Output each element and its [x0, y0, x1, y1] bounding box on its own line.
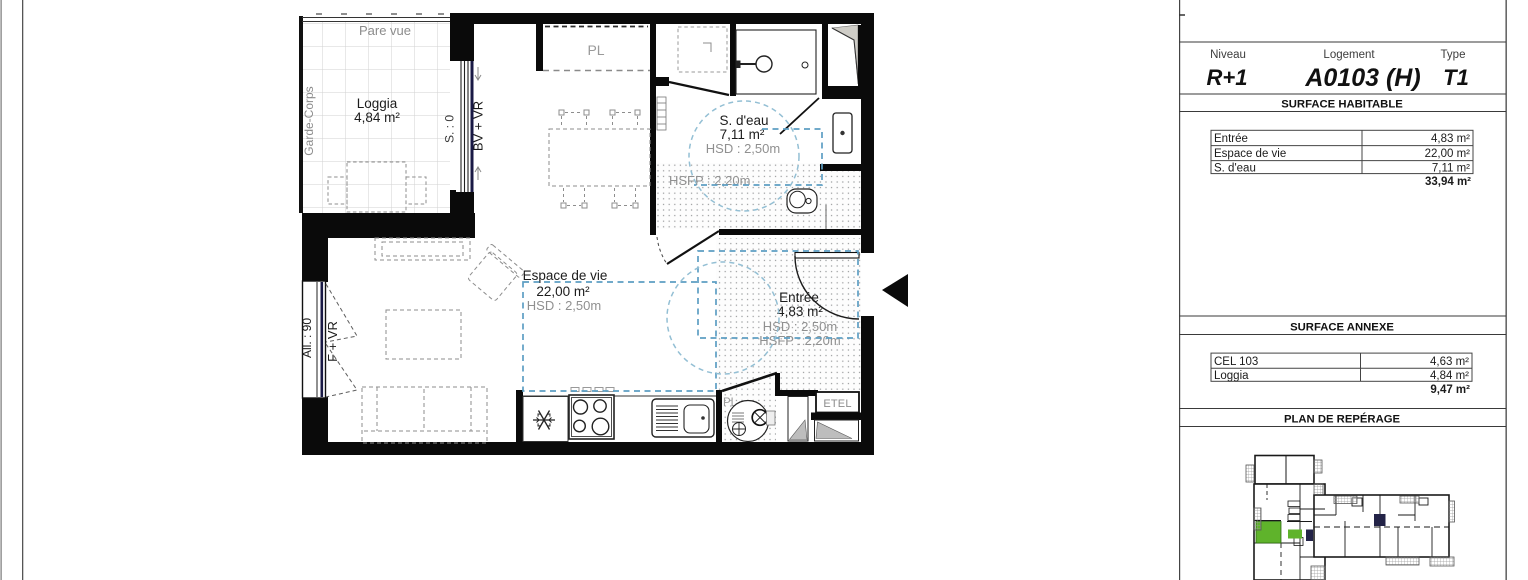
svg-text:BV + VR: BV + VR: [471, 101, 486, 151]
svg-text:HSD : 2,50m: HSD : 2,50m: [763, 319, 837, 334]
svg-text:HSD : 2,50m: HSD : 2,50m: [527, 298, 601, 313]
svg-text:4,83 m²: 4,83 m²: [777, 304, 823, 319]
svg-text:S. d'eau: S. d'eau: [1214, 162, 1256, 174]
svg-text:HSD : 2,50m: HSD : 2,50m: [706, 141, 780, 156]
svg-text:SURFACE HABITABLE: SURFACE HABITABLE: [1281, 99, 1403, 111]
svg-text:S. d'eau: S. d'eau: [719, 113, 768, 128]
svg-text:7,11 m²: 7,11 m²: [720, 127, 765, 142]
svg-text:Entrée: Entrée: [1214, 133, 1248, 145]
svg-text:Niveau: Niveau: [1210, 49, 1246, 61]
svg-text:SURFACE ANNEXE: SURFACE ANNEXE: [1290, 322, 1394, 334]
svg-text:ETEL: ETEL: [823, 398, 851, 410]
svg-text:Garde-Corps: Garde-Corps: [302, 86, 316, 155]
svg-text:R+1: R+1: [1207, 65, 1248, 90]
svg-text:All. : 90: All. : 90: [300, 318, 314, 358]
svg-text:9,47 m²: 9,47 m²: [1430, 384, 1470, 396]
svg-text:Entrée: Entrée: [779, 290, 819, 305]
svg-text:7,11 m²: 7,11 m²: [1432, 162, 1470, 174]
svg-text:CEL 103: CEL 103: [1214, 356, 1258, 368]
svg-text:Loggia: Loggia: [1214, 370, 1249, 382]
svg-text:Pare vue: Pare vue: [359, 23, 411, 38]
svg-text:A0103 (H): A0103 (H): [1304, 64, 1420, 92]
svg-text:Type: Type: [1441, 49, 1466, 61]
svg-text:33,94 m²: 33,94 m²: [1425, 176, 1471, 188]
svg-text:PLAN DE REPÉRAGE: PLAN DE REPÉRAGE: [1284, 413, 1401, 426]
svg-text:Loggia: Loggia: [357, 96, 398, 111]
svg-text:F + VR: F + VR: [325, 321, 340, 362]
svg-text:4,84 m²: 4,84 m²: [354, 110, 400, 125]
svg-text:4,83 m²: 4,83 m²: [1431, 133, 1470, 145]
svg-text:S. : 0: S. : 0: [443, 115, 457, 143]
svg-text:22,00 m²: 22,00 m²: [536, 284, 590, 299]
svg-text:4,63 m²: 4,63 m²: [1430, 356, 1469, 368]
svg-text:4,84 m²: 4,84 m²: [1430, 370, 1469, 382]
svg-text:PL: PL: [587, 42, 604, 58]
svg-text:22,00 m²: 22,00 m²: [1425, 148, 1471, 160]
svg-text:Logement: Logement: [1323, 49, 1375, 61]
svg-text:Espace de vie: Espace de vie: [523, 268, 608, 283]
svg-text:Espace de vie: Espace de vie: [1214, 148, 1286, 160]
svg-text:T1: T1: [1443, 65, 1469, 90]
